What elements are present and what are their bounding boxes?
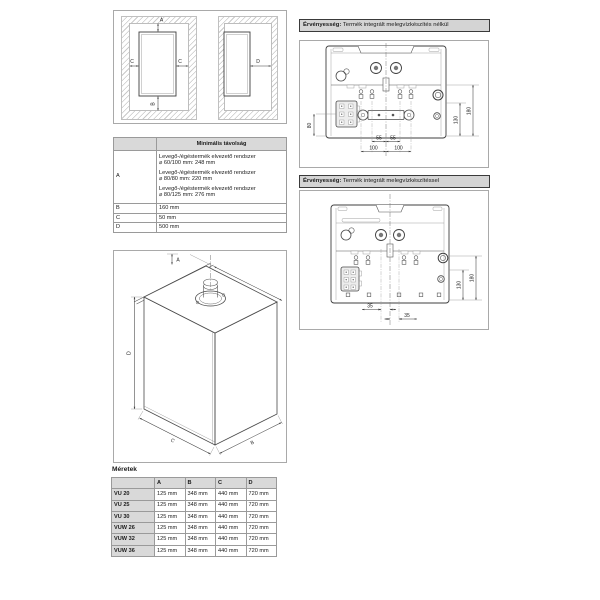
value-cell: 720 mm xyxy=(246,511,277,522)
value-cell: 125 mm xyxy=(155,523,186,534)
value-line: Levegő-/égéstermék elvezető rendszer xyxy=(159,186,284,193)
min-distance-title: Minimális távolság xyxy=(157,138,287,151)
row-key: C xyxy=(114,213,157,223)
iso-label-d: D xyxy=(127,351,133,355)
col-header-c: C xyxy=(216,478,247,489)
row-value: 500 mm xyxy=(157,223,287,233)
dim-130: 130 xyxy=(454,116,460,125)
dim-35-right: 35 xyxy=(404,313,410,319)
manual-page: A B C C D Minimális távolság A Levegő-/é… xyxy=(0,0,600,600)
model-cell: VU 20 xyxy=(112,489,155,500)
value-cell: 720 mm xyxy=(246,489,277,500)
value-cell: 720 mm xyxy=(246,534,277,545)
dim-55-right: 55 xyxy=(390,135,396,141)
value-cell: 720 mm xyxy=(246,545,277,556)
table-header-row: A B C D xyxy=(112,478,277,489)
table-row: VUW 36 125 mm 348 mm 440 mm 720 mm xyxy=(112,545,277,556)
dimensions-table-title: Méretek xyxy=(112,466,137,473)
col-header-d: D xyxy=(246,478,277,489)
iso-dimension-drawing: D C B A xyxy=(113,250,287,463)
value-line: Levegő-/égéstermék elvezető rendszer xyxy=(159,170,284,177)
value-cell: 125 mm xyxy=(155,545,186,556)
value-cell: 440 mm xyxy=(216,545,247,556)
boiler-bottom-view-drawing-1: 55 55 100 100 80 130 180 xyxy=(300,41,488,167)
value-cell: 348 mm xyxy=(185,523,216,534)
dim-55-left: 55 xyxy=(376,135,382,141)
value-line: ⌀ 80/125 mm: 276 mm xyxy=(159,192,284,199)
table-row: B 160 mm xyxy=(114,203,287,213)
value-cell: 440 mm xyxy=(216,511,247,522)
iso-label-a: A xyxy=(176,258,180,264)
min-distance-table: Minimális távolság A Levegő-/égéstermék … xyxy=(113,137,287,233)
value-cell: 125 mm xyxy=(155,534,186,545)
table-row: D 500 mm xyxy=(114,223,287,233)
value-cell: 348 mm xyxy=(185,534,216,545)
validity-header-2: Érvényesség: Termék integrált melegvízké… xyxy=(299,175,490,188)
bottom-view-box-2: 35 35 130 180 xyxy=(299,190,489,330)
dim-130: 130 xyxy=(457,281,463,290)
table-row: VU 20 125 mm 348 mm 440 mm 720 mm xyxy=(112,489,277,500)
value-cell: 125 mm xyxy=(155,489,186,500)
bottom-view-box-1: 55 55 100 100 80 130 180 xyxy=(299,40,489,168)
boiler-bottom-view-drawing-2: 35 35 130 180 xyxy=(300,191,488,329)
value-cell: 720 mm xyxy=(246,523,277,534)
value-cell: 348 mm xyxy=(185,500,216,511)
header-empty-cell xyxy=(114,138,157,151)
table-row: VU 25 125 mm 348 mm 440 mm 720 mm xyxy=(112,500,277,511)
value-line: ⌀ 80/80 mm: 220 mm xyxy=(159,176,284,183)
value-cell: 348 mm xyxy=(185,545,216,556)
model-cell: VUW 26 xyxy=(112,523,155,534)
model-cell: VUW 32 xyxy=(112,534,155,545)
validity-text: Termék integrált melegvízkészítés nélkül xyxy=(341,22,448,28)
dim-100-left: 100 xyxy=(369,145,378,151)
validity-label: Érvényesség: xyxy=(303,178,341,184)
validity-label: Érvényesség: xyxy=(303,22,341,28)
value-cell: 440 mm xyxy=(216,523,247,534)
table-row: VU 30 125 mm 348 mm 440 mm 720 mm xyxy=(112,511,277,522)
validity-header-1: Érvényesség: Termék integrált melegvízké… xyxy=(299,19,490,32)
model-cell: VU 25 xyxy=(112,500,155,511)
value-line: ⌀ 60/100 mm: 248 mm xyxy=(159,160,284,167)
clearance-drawing: A B C C D xyxy=(114,11,288,125)
table-header-row: Minimális távolság xyxy=(114,138,287,151)
dim-80: 80 xyxy=(307,123,313,129)
value-cell: 348 mm xyxy=(185,489,216,500)
clearance-diagram: A B C C D xyxy=(113,10,287,124)
table-row: A Levegő-/égéstermék elvezető rendszer⌀ … xyxy=(114,151,287,204)
value-cell: 348 mm xyxy=(185,511,216,522)
table-row: C 50 mm xyxy=(114,213,287,223)
value-cell: 440 mm xyxy=(216,500,247,511)
model-cell: VUW 36 xyxy=(112,545,155,556)
clearance-label-b: B xyxy=(151,102,157,106)
col-header-a: A xyxy=(155,478,186,489)
iso-label-c: C xyxy=(169,438,175,445)
table-row: VUW 26 125 mm 348 mm 440 mm 720 mm xyxy=(112,523,277,534)
row-key: A xyxy=(114,151,157,204)
row-value: Levegő-/égéstermék elvezető rendszer⌀ 60… xyxy=(157,151,287,204)
dim-35-left: 35 xyxy=(367,303,373,309)
value-cell: 125 mm xyxy=(155,511,186,522)
row-value: 160 mm xyxy=(157,203,287,213)
header-empty-cell xyxy=(112,478,155,489)
table-row: VUW 32 125 mm 348 mm 440 mm 720 mm xyxy=(112,534,277,545)
iso-label-b: B xyxy=(250,439,256,446)
dim-180: 180 xyxy=(467,107,473,116)
value-cell: 720 mm xyxy=(246,500,277,511)
value-cell: 440 mm xyxy=(216,489,247,500)
row-value: 50 mm xyxy=(157,213,287,223)
validity-text: Termék integrált melegvízkészítéssel xyxy=(341,178,439,184)
clearance-label-d: D xyxy=(256,59,260,65)
boiler-iso-drawing: D C B A xyxy=(114,251,286,462)
row-key: D xyxy=(114,223,157,233)
clearance-label-a: A xyxy=(160,18,164,24)
row-key: B xyxy=(114,203,157,213)
dimensions-table: A B C D VU 20 125 mm 348 mm 440 mm 720 m… xyxy=(111,477,277,557)
model-cell: VU 30 xyxy=(112,511,155,522)
col-header-b: B xyxy=(185,478,216,489)
value-cell: 440 mm xyxy=(216,534,247,545)
value-cell: 125 mm xyxy=(155,500,186,511)
value-line: Levegő-/égéstermék elvezető rendszer xyxy=(159,154,284,161)
dim-100-right: 100 xyxy=(394,145,403,151)
clearance-label-c-left: C xyxy=(130,59,134,65)
dim-180: 180 xyxy=(470,274,476,283)
clearance-label-c-right: C xyxy=(178,59,182,65)
